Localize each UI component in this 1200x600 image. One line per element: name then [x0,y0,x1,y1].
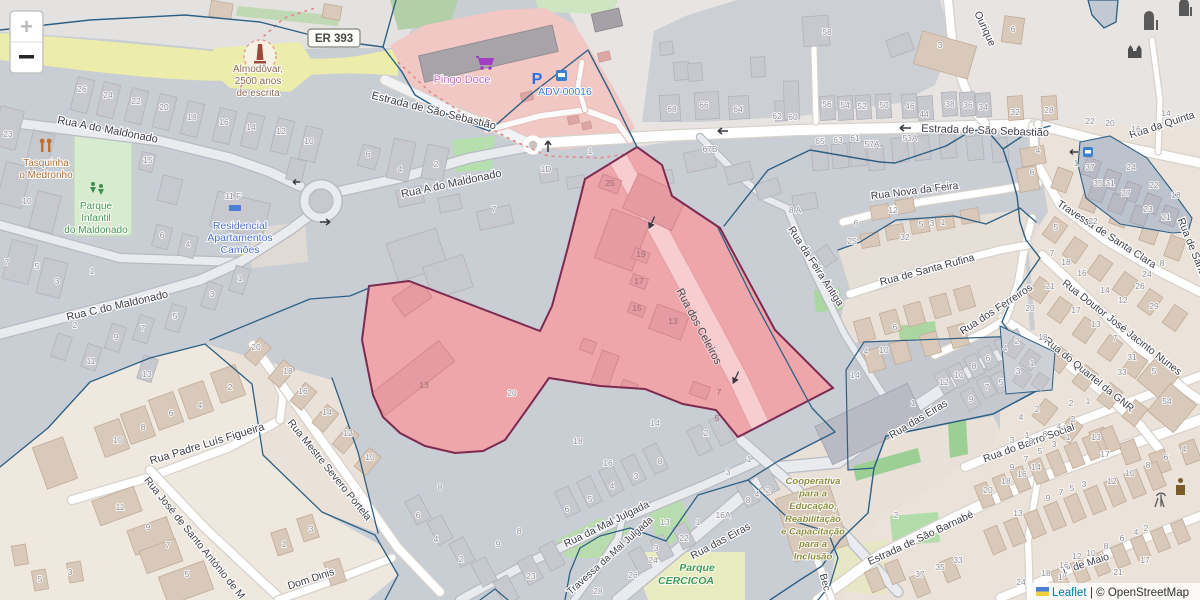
svg-text:4: 4 [198,400,203,410]
svg-text:5: 5 [1152,366,1157,376]
svg-text:20: 20 [251,342,261,352]
svg-text:13: 13 [668,316,678,326]
svg-text:4: 4 [1134,527,1139,537]
svg-text:2: 2 [894,510,899,520]
svg-text:+: + [20,14,33,39]
svg-text:9: 9 [1010,462,1015,472]
svg-text:26: 26 [77,84,87,94]
svg-text:2: 2 [73,320,78,330]
svg-text:3: 3 [1052,439,1057,449]
svg-text:CERCICOA: CERCICOA [658,575,714,587]
svg-text:21: 21 [1045,281,1055,291]
svg-text:20: 20 [1025,303,1035,313]
svg-text:44: 44 [919,109,929,119]
svg-text:67B: 67B [702,144,717,154]
svg-text:24: 24 [103,90,113,100]
svg-text:11: 11 [116,502,125,512]
svg-text:para a: para a [798,539,827,550]
svg-text:5: 5 [185,569,190,579]
svg-text:17: 17 [1100,449,1110,459]
svg-text:20: 20 [159,102,169,112]
svg-text:2: 2 [459,554,464,564]
svg-text:3: 3 [930,218,935,228]
svg-text:16A: 16A [715,510,730,520]
svg-text:25: 25 [847,236,857,246]
svg-text:36: 36 [963,100,973,110]
svg-text:28: 28 [593,586,603,596]
svg-text:4: 4 [610,481,615,491]
svg-text:12: 12 [939,377,949,387]
svg-text:Parque: Parque [679,562,715,574]
svg-text:20: 20 [1105,118,1115,128]
svg-text:29: 29 [1149,301,1159,311]
svg-text:Tasquinha: Tasquinha [23,158,69,169]
svg-text:Parque: Parque [80,201,113,212]
svg-text:12: 12 [276,126,286,136]
svg-text:31: 31 [1105,178,1115,188]
svg-text:37: 37 [915,569,925,579]
svg-text:1: 1 [911,398,916,408]
svg-text:18: 18 [573,436,583,446]
svg-text:18: 18 [1171,190,1181,200]
svg-text:1: 1 [747,454,752,464]
svg-text:64: 64 [733,104,743,114]
svg-text:26: 26 [628,570,638,580]
svg-text:Educação,: Educação, [789,501,837,512]
svg-text:4: 4 [1057,421,1062,431]
svg-text:16: 16 [603,458,613,468]
svg-text:4: 4 [434,534,439,544]
svg-text:18: 18 [1041,568,1051,578]
svg-text:16: 16 [1077,268,1087,278]
svg-text:2: 2 [704,428,709,438]
svg-text:6: 6 [160,230,165,240]
svg-text:16: 16 [219,117,229,127]
svg-text:6: 6 [169,408,174,418]
svg-text:15: 15 [143,155,153,165]
svg-text:21: 21 [1113,567,1123,577]
svg-text:28: 28 [1044,105,1054,115]
svg-text:3: 3 [1016,366,1021,376]
svg-text:7: 7 [492,204,497,214]
svg-text:27: 27 [1121,188,1131,198]
svg-text:3: 3 [634,471,639,481]
svg-text:57A: 57A [864,139,879,149]
svg-text:5: 5 [1038,446,1043,456]
svg-text:22: 22 [131,96,141,106]
svg-text:1: 1 [1066,432,1071,442]
svg-text:8: 8 [517,526,522,536]
svg-text:8: 8 [141,422,146,432]
svg-text:9: 9 [969,394,974,404]
svg-text:53A: 53A [902,133,917,143]
svg-text:35: 35 [935,562,945,572]
svg-text:8: 8 [1104,541,1109,551]
svg-text:15: 15 [632,303,642,313]
svg-text:22: 22 [1085,116,1095,126]
svg-text:11: 11 [87,356,96,366]
svg-text:14: 14 [322,407,332,417]
svg-text:23: 23 [526,571,536,581]
svg-text:19: 19 [636,249,646,259]
svg-text:Reabilitação: Reabilitação [785,514,841,525]
svg-text:24: 24 [1126,162,1136,172]
svg-text:21: 21 [1161,212,1171,222]
svg-text:35: 35 [1093,178,1103,188]
svg-text:14: 14 [650,418,660,428]
svg-text:13: 13 [142,369,152,379]
svg-text:7: 7 [1024,454,1029,464]
svg-text:16: 16 [298,386,308,396]
svg-text:66: 66 [699,100,709,110]
svg-text:10: 10 [304,136,314,146]
svg-text:10: 10 [1086,548,1096,558]
svg-text:6: 6 [416,510,421,520]
svg-text:1: 1 [1030,358,1035,368]
svg-text:14: 14 [1100,285,1110,295]
svg-text:23: 23 [3,129,13,139]
svg-text:3: 3 [68,567,73,577]
svg-text:7: 7 [985,382,990,392]
svg-text:7: 7 [166,540,171,550]
svg-text:17: 17 [1140,555,1150,565]
svg-text:24: 24 [648,555,658,565]
svg-text:7: 7 [1113,333,1118,343]
svg-text:| © OpenStreetMap: | © OpenStreetMap [1090,587,1189,599]
svg-text:2: 2 [766,485,771,495]
svg-text:33: 33 [953,555,963,565]
svg-text:20: 20 [983,485,993,495]
svg-text:8: 8 [658,456,663,466]
svg-text:6: 6 [565,504,570,514]
svg-text:18: 18 [187,112,197,122]
svg-text:8: 8 [1146,460,1151,470]
svg-text:13: 13 [419,380,429,390]
svg-text:22: 22 [1149,180,1159,190]
svg-text:6: 6 [854,218,859,228]
svg-text:6: 6 [1120,533,1125,543]
svg-text:o Medronho: o Medronho [19,170,73,181]
svg-text:7: 7 [5,257,10,267]
svg-text:60: 60 [788,112,798,122]
svg-text:Leaflet: Leaflet [1052,587,1087,599]
svg-text:2: 2 [1144,523,1149,533]
svg-text:10: 10 [113,435,123,445]
svg-text:6: 6 [1164,452,1169,462]
svg-text:61: 61 [850,133,860,143]
svg-text:12: 12 [888,205,898,215]
svg-text:7: 7 [717,387,722,397]
svg-text:18: 18 [1038,332,1048,342]
svg-text:5: 5 [1054,222,1059,232]
svg-text:3: 3 [309,524,314,534]
svg-text:16: 16 [1131,124,1141,134]
svg-text:10: 10 [1125,468,1135,478]
svg-text:6: 6 [1030,167,1035,177]
svg-text:56: 56 [822,99,832,109]
svg-text:1: 1 [282,539,287,549]
svg-text:10: 10 [879,345,889,355]
svg-text:ADV-00016: ADV-00016 [538,86,592,98]
svg-text:7: 7 [1050,248,1055,258]
svg-text:16: 16 [1059,560,1069,570]
svg-text:24: 24 [1142,269,1152,279]
svg-text:4: 4 [186,239,191,249]
svg-text:6: 6 [986,353,991,363]
svg-text:de escrita: de escrita [236,88,280,99]
svg-text:3: 3 [210,289,215,299]
svg-text:7: 7 [1059,487,1064,497]
svg-text:8: 8 [438,482,443,492]
svg-text:12: 12 [1107,476,1117,486]
svg-text:1: 1 [90,266,95,276]
svg-text:5: 5 [919,219,924,229]
svg-text:Cooperativa: Cooperativa [786,476,841,487]
svg-text:4: 4 [1019,412,1024,422]
svg-text:1D: 1D [541,164,552,174]
svg-text:5: 5 [38,574,43,584]
svg-text:37: 37 [1085,162,1095,172]
svg-text:2: 2 [1069,398,1074,408]
svg-text:2: 2 [1015,336,1020,346]
svg-text:6: 6 [1011,24,1016,34]
svg-text:14: 14 [1031,462,1041,472]
svg-text:4: 4 [1003,343,1008,353]
svg-text:32: 32 [900,232,910,242]
svg-text:63: 63 [833,135,843,145]
svg-text:2: 2 [228,382,233,392]
svg-text:68: 68 [667,104,677,114]
svg-text:13: 13 [1091,319,1101,329]
svg-text:16: 16 [1017,469,1027,479]
svg-text:10: 10 [22,196,32,206]
svg-text:22: 22 [679,533,689,543]
svg-text:52: 52 [857,101,867,111]
svg-text:8: 8 [972,361,977,371]
svg-text:18: 18 [283,366,293,376]
svg-text:6: 6 [1043,429,1048,439]
svg-text:Inclusão: Inclusão [794,552,833,563]
svg-text:5: 5 [173,311,178,321]
svg-text:13: 13 [1091,432,1101,442]
svg-text:12: 12 [1072,551,1082,561]
svg-text:65: 65 [815,136,825,146]
svg-text:2500 anos: 2500 anos [235,76,282,87]
svg-text:14: 14 [246,122,256,132]
svg-text:8: 8 [1160,258,1165,268]
svg-text:1: 1 [1074,158,1079,168]
svg-text:17: 17 [634,276,644,286]
svg-text:3: 3 [654,543,659,553]
svg-text:do Maldonado: do Maldonado [64,225,128,236]
svg-text:62: 62 [772,111,782,121]
svg-text:para a: para a [798,489,827,500]
svg-text:2: 2 [1071,414,1076,424]
svg-text:10: 10 [954,370,964,380]
svg-text:14: 14 [850,370,860,380]
svg-text:12: 12 [343,428,353,438]
svg-text:Pingo Doce: Pingo Doce [434,74,491,86]
svg-text:4: 4 [755,489,760,499]
svg-text:Infantil: Infantil [81,213,110,224]
svg-text:4: 4 [398,164,403,174]
svg-text:9: 9 [146,522,151,532]
svg-text:54: 54 [840,100,850,110]
svg-text:13: 13 [1013,508,1023,518]
svg-text:1: 1 [696,517,701,527]
svg-text:34: 34 [978,102,988,112]
svg-text:1º: 1º [1058,572,1066,582]
svg-text:6: 6 [366,149,371,159]
svg-text:14: 14 [1161,108,1171,118]
svg-text:1: 1 [238,273,243,283]
svg-text:2: 2 [434,159,439,169]
svg-text:8: 8 [746,495,751,505]
svg-text:9: 9 [496,539,501,549]
svg-text:e Capacitação: e Capacitação [781,526,845,537]
svg-text:3: 3 [938,40,943,50]
svg-text:Almodôvar,: Almodôvar, [233,64,283,75]
svg-text:3: 3 [1082,479,1087,489]
svg-text:11 F: 11 F [225,191,241,201]
svg-text:26: 26 [1135,281,1145,291]
svg-text:9: 9 [114,332,119,342]
svg-text:46: 46 [905,101,915,111]
svg-text:3: 3 [726,467,731,477]
svg-text:Camões: Camões [220,244,259,256]
svg-text:58: 58 [822,27,832,37]
svg-text:18: 18 [1061,257,1071,267]
svg-text:4: 4 [1182,444,1187,454]
svg-text:5: 5 [1070,483,1075,493]
svg-text:5: 5 [588,494,593,504]
svg-text:22: 22 [1088,216,1098,226]
svg-text:8 A: 8 A [789,205,802,215]
svg-text:20: 20 [507,388,517,398]
svg-text:24: 24 [1016,577,1026,587]
svg-text:4: 4 [1036,145,1041,155]
svg-text:13: 13 [660,517,670,527]
svg-text:6: 6 [893,322,898,332]
svg-text:50: 50 [879,100,889,110]
svg-text:18: 18 [1001,476,1011,486]
svg-text:23: 23 [1143,204,1153,214]
svg-text:5: 5 [999,377,1004,387]
svg-text:Apartamentos: Apartamentos [207,232,272,244]
svg-text:9: 9 [1046,493,1051,503]
svg-text:1: 1 [941,217,946,227]
svg-text:3: 3 [55,276,60,286]
svg-text:54: 54 [1162,396,1172,406]
svg-text:3: 3 [1010,435,1015,445]
svg-text:25: 25 [605,178,615,188]
svg-text:8: 8 [1029,436,1034,446]
svg-text:1: 1 [1086,396,1091,406]
svg-text:5: 5 [35,261,40,271]
svg-text:38: 38 [945,99,955,109]
svg-text:7: 7 [141,323,146,333]
svg-text:17: 17 [1071,305,1081,315]
svg-text:5: 5 [715,413,720,423]
svg-text:Residencial: Residencial [213,220,267,232]
svg-text:2: 2 [1035,404,1040,414]
svg-text:4: 4 [864,346,869,356]
svg-text:ER 393: ER 393 [315,33,353,45]
svg-text:1: 1 [588,146,593,156]
svg-text:10: 10 [365,452,375,462]
svg-text:31: 31 [1127,352,1137,362]
svg-text:33: 33 [1117,367,1127,377]
svg-text:12: 12 [1118,295,1128,305]
svg-text:32: 32 [1010,107,1020,117]
